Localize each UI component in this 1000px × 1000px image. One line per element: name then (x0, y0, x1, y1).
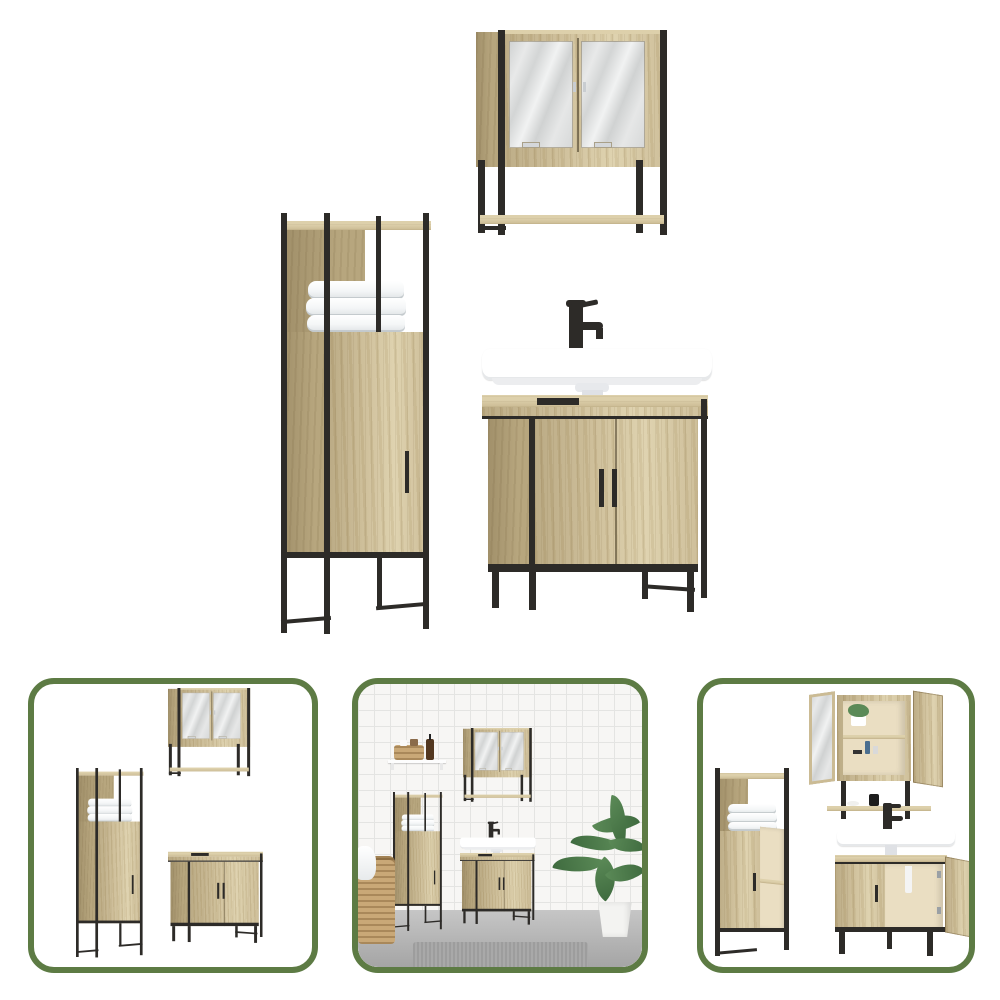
mirror-cabinet (476, 30, 671, 235)
faucet-tip (498, 831, 500, 835)
frame-post-left (177, 688, 180, 776)
frame-leg-left (529, 572, 536, 610)
mirror-door-gap (499, 731, 500, 772)
door-handle (434, 871, 435, 885)
frame-bottom-rail (171, 923, 259, 926)
tall-cabinet (281, 213, 431, 635)
bottom-rail (718, 928, 786, 932)
frame-post-rear-right (260, 853, 263, 937)
cabinet-interior (885, 864, 943, 930)
door-handle-right (503, 877, 505, 890)
door-handle (405, 451, 409, 493)
draped-towel (354, 846, 376, 880)
sink-cabinet (460, 821, 537, 926)
frame-leg-front-right (528, 911, 530, 924)
mirror-door-latch-left (522, 142, 540, 148)
tall-cabinet-top-plank (281, 221, 431, 230)
tall-cabinet (393, 792, 443, 931)
mirror-door-left (475, 732, 498, 771)
interior-plant (848, 704, 869, 717)
frame-foot-bar-right (235, 931, 257, 934)
interior-bottle (873, 746, 878, 754)
mirror-door-gap (577, 38, 579, 152)
door-handle (875, 885, 878, 902)
wall-shelf (388, 760, 446, 763)
folded-towel (306, 298, 406, 316)
main-sink-cabinet (482, 298, 714, 616)
thumb1-sink-cabinet (168, 811, 265, 945)
frame-leg-front-right (687, 572, 694, 612)
sink-cabinet-side-panel (488, 419, 531, 572)
open-wood-door (913, 691, 943, 788)
open-sink-cabinet (827, 803, 975, 963)
frame-leg-left (188, 926, 191, 942)
frame-bottom-rail (462, 909, 531, 912)
mirror-door-left (182, 693, 210, 739)
shelf-jar (410, 739, 418, 746)
door-handle-left (499, 877, 501, 890)
mirror-door-latch-right (219, 736, 227, 739)
wall-shelf-bracket (391, 763, 394, 770)
door-handle (132, 875, 134, 894)
frame-post-front-left (324, 213, 330, 634)
frame-foot-bar (169, 772, 181, 774)
thumb1-mirror-cabinet (168, 688, 252, 776)
frame-rear-rail (191, 853, 209, 856)
main-tall-cabinet (281, 213, 431, 635)
mirror-door-handle-left (210, 710, 211, 714)
tall-cabinet-door (409, 831, 441, 906)
thumb1-tall-cabinet (76, 768, 144, 958)
wash-basin (482, 348, 712, 380)
frame-foot-bar (464, 799, 474, 800)
thumb2-sink-cabinet (460, 821, 537, 926)
mirror-cabinet-top-edge (498, 30, 667, 34)
frame-leg-rear-right (377, 558, 382, 608)
door-handle-left (217, 883, 219, 899)
frame-post-right (660, 30, 667, 235)
frame-foot-bar-right (376, 602, 429, 611)
main-mirror-cabinet (476, 30, 671, 235)
interior-shelf (843, 735, 905, 739)
frame-rear-rail (478, 854, 492, 856)
thumbnail-set-white[interactable] (28, 678, 318, 973)
mirror-door-right (213, 693, 241, 739)
mirror-door-latch-right (505, 768, 511, 770)
soap-dispenser-pump (429, 734, 431, 740)
frame-leg-front-left (463, 911, 465, 923)
thumbnail-2-content (358, 684, 642, 967)
mirror-cabinet-top-edge (177, 688, 250, 690)
frame-foot-bar (478, 226, 506, 230)
frame-post-right (440, 792, 442, 929)
tall-cabinet-door (98, 822, 142, 924)
mirror-cabinet-side-panel (463, 729, 471, 778)
sink-cabinet (168, 811, 265, 945)
product-listing-image (0, 0, 1000, 1000)
mirror-door-latch-left (480, 768, 486, 770)
faucet-lever (889, 804, 901, 808)
frame-post-right (247, 688, 250, 776)
sink-cabinet (482, 298, 714, 616)
main-product-image[interactable] (0, 0, 1000, 660)
wash-basin (837, 829, 955, 846)
folded-towel (88, 814, 132, 822)
faucet-spout (889, 816, 903, 821)
door-handle-right (612, 469, 617, 507)
mirror-door-gap (211, 691, 212, 740)
sink-cabinet-side-panel (171, 862, 189, 926)
mirror-door-latch-left (188, 736, 196, 739)
tall-cabinet-side-panel (282, 332, 329, 558)
frame-post-rear-right (532, 854, 534, 920)
frame-foot-bar-right (513, 915, 531, 918)
mirror-door-latch-right (594, 142, 612, 148)
bath-rug (413, 942, 588, 969)
door-handle-left (599, 469, 604, 507)
frame-post-left (498, 30, 505, 235)
mirror-cabinet (168, 688, 252, 776)
mirror-door-handle-left (573, 82, 576, 92)
frame-bottom-rail (76, 921, 141, 924)
vanity-top (835, 855, 947, 862)
frame-bottom-rail (393, 904, 441, 906)
frame-leg (839, 932, 845, 954)
interior-bottle (865, 741, 870, 754)
vanity-top-surface (482, 395, 708, 407)
mirror-door-handle-right (214, 710, 215, 714)
door-hinge (937, 907, 941, 914)
open-mirror-door (809, 691, 835, 785)
interior-tray (853, 750, 862, 754)
frame-rear-rail (537, 398, 579, 405)
mirror-door-right (581, 41, 645, 148)
frame-post-rear-right (119, 769, 121, 821)
tall-cabinet (76, 768, 144, 958)
frame-post-rear-left (76, 768, 79, 957)
wall-shelf-bracket (440, 763, 443, 770)
thumbnail-set-doors-open[interactable] (697, 678, 975, 973)
mirror-cabinet-side-panel (476, 32, 498, 167)
soap-dispenser (426, 739, 434, 760)
frame-leg-front-left (172, 926, 175, 941)
frame-post-rear-right (701, 399, 707, 598)
door-hinge (937, 871, 941, 878)
tall-cabinet-door (329, 332, 426, 558)
frame-leg (927, 932, 933, 956)
frame-bottom-rail (488, 564, 698, 572)
thumb2-mirror-cabinet (463, 728, 533, 802)
frame-post-rear-right (424, 793, 426, 831)
door-handle-right (223, 883, 225, 899)
folded-towel (307, 315, 405, 332)
mirror-door-handle-right (583, 82, 586, 92)
sink-cabinet-side-panel (462, 861, 476, 911)
frame-leg-rear-right (119, 923, 121, 946)
open-door (945, 856, 972, 937)
mirror-door-right (501, 732, 524, 771)
towel-rail-shelf (480, 215, 664, 224)
mirror-door-handle-right (502, 747, 503, 751)
frame-leg-front-left (492, 572, 499, 608)
open-tall-cabinet (715, 768, 791, 964)
frame-leg-rear (887, 932, 892, 949)
frame-post-rear-left (281, 213, 287, 633)
frame-post-rear-right (376, 216, 381, 332)
mirror-cabinet-top-edge (471, 728, 532, 729)
frame-post-left (471, 728, 474, 802)
thumbnail-3-content (703, 684, 969, 967)
mirror-door-left (509, 41, 573, 148)
towel-rail-shelf (170, 768, 249, 772)
mirror-cabinet (463, 728, 533, 802)
mirror-cabinet-side-panel (168, 689, 177, 747)
frame-post-right (784, 768, 789, 950)
frame-post-right (529, 728, 532, 802)
frame-leg-rear-right (425, 906, 427, 923)
frame-leg-front-right (254, 926, 257, 943)
thumbnail-bathroom-scene[interactable] (352, 678, 648, 973)
faucet-lever (493, 821, 499, 824)
vanity-top-front-edge (482, 407, 708, 416)
thumbnail-1-content (34, 684, 312, 967)
frame-post-right (140, 768, 143, 955)
thumb2-tall-cabinet (393, 792, 443, 931)
drain-pipe (905, 866, 912, 893)
faucet-tip (596, 328, 603, 339)
folded-towel (308, 281, 404, 299)
frame-post-right (423, 213, 429, 629)
towel-rail-shelf (464, 795, 530, 798)
mirror-door-handle-left (498, 747, 499, 751)
frame-post-front-left (95, 768, 98, 957)
frame-post-front-left (407, 792, 409, 931)
frame-bottom-rail (282, 552, 426, 558)
open-mirror-cabinet (807, 693, 947, 815)
shelf-basket (394, 745, 424, 760)
door-handle (753, 873, 756, 891)
foot-bar (715, 948, 757, 955)
shelf-cup (400, 740, 407, 746)
frame-leg-left (476, 911, 478, 924)
